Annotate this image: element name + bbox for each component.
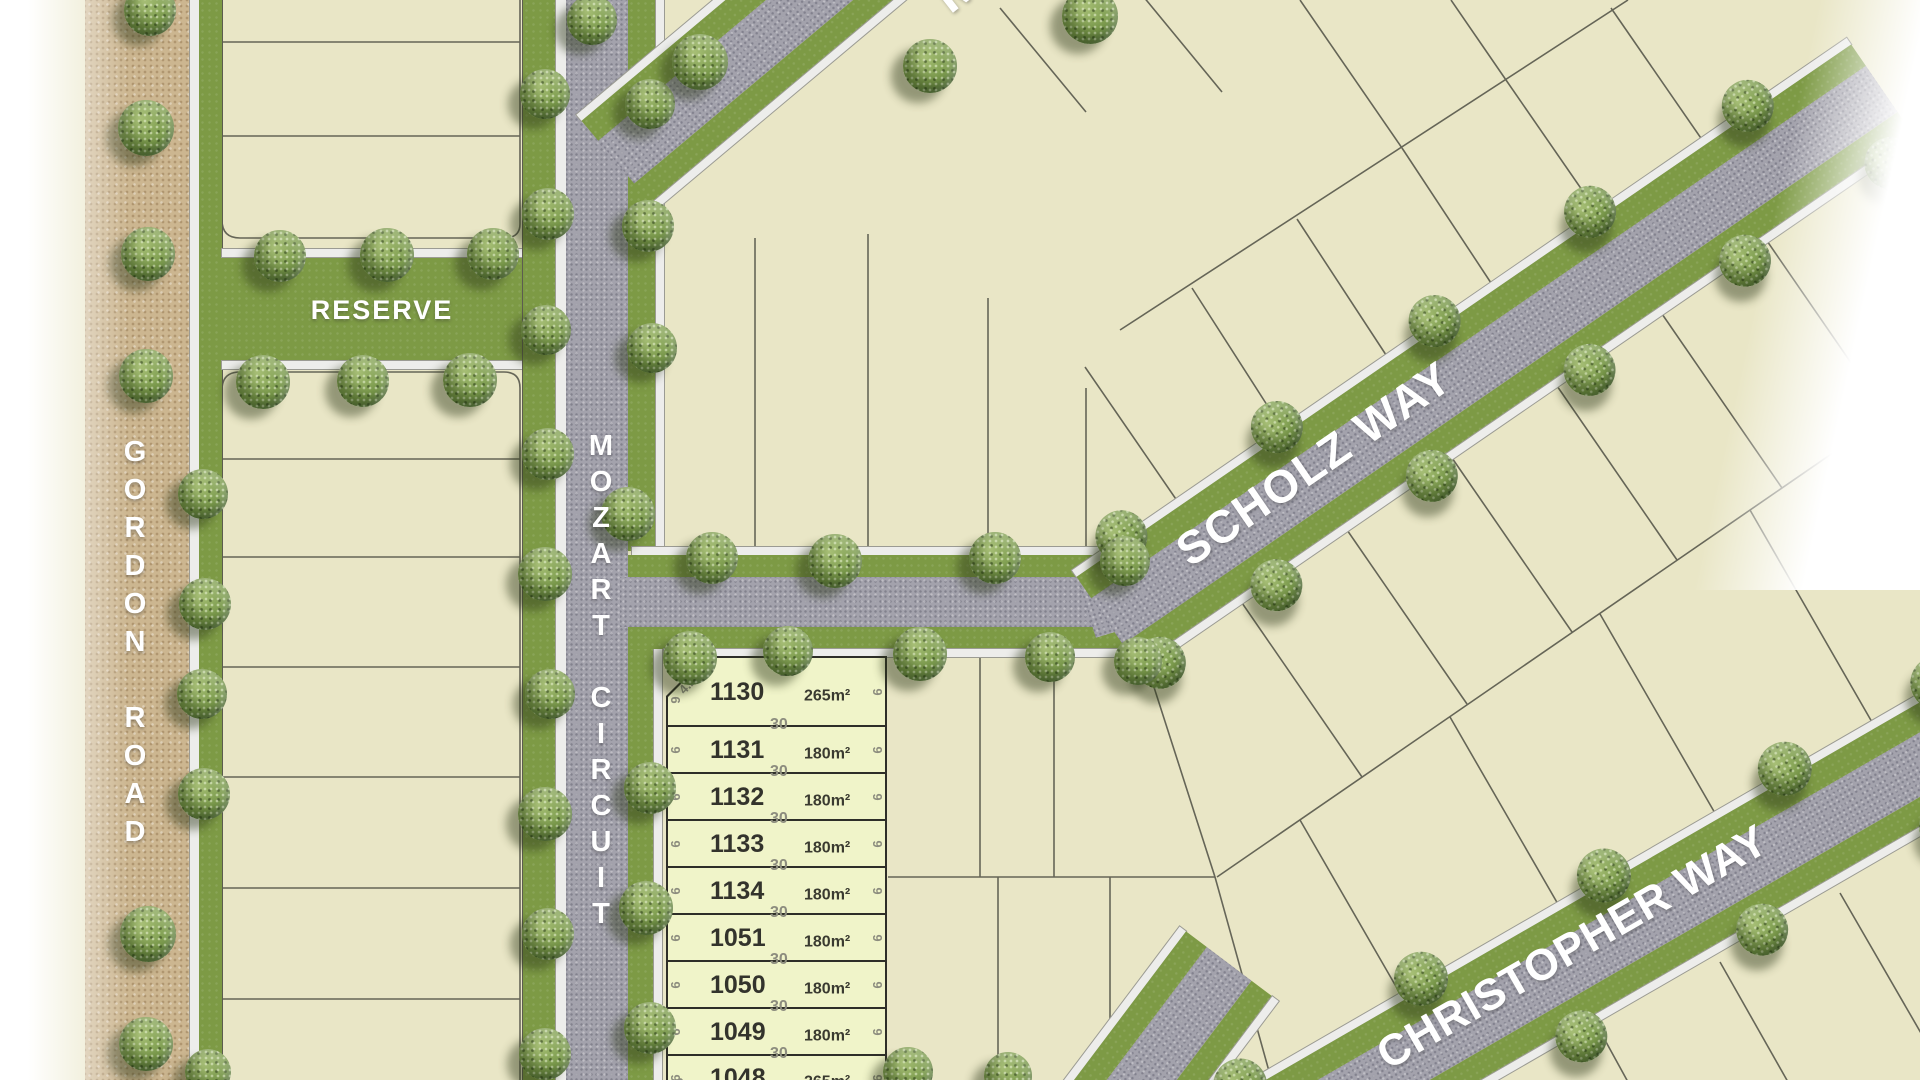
tree-icon: [672, 34, 728, 90]
lot-side-dimension-right: 6: [870, 840, 885, 847]
tree-icon: [624, 1002, 676, 1054]
lot-side-dimension-right: 6: [870, 887, 885, 894]
lot-front-dimension: 30: [770, 998, 788, 1016]
lot-number: 1133: [710, 830, 764, 859]
tree-icon: [467, 228, 519, 280]
tree-icon: [522, 188, 574, 240]
lot-number: 1049: [710, 1018, 766, 1047]
tree-icon: [1025, 632, 1075, 682]
tree-icon: [178, 768, 230, 820]
lot-front-dimension: 30: [770, 857, 788, 875]
lot-front-dimension: 30: [770, 904, 788, 922]
lot-side-dimension-right: 6: [870, 688, 885, 695]
tree-icon: [118, 100, 174, 156]
lot-front-dimension: 30: [770, 716, 788, 734]
lot-number: 1132: [710, 783, 764, 812]
lot-area: 180m²: [804, 1027, 850, 1045]
lot-side-dimension-left: 6: [668, 840, 683, 847]
tree-icon: [522, 908, 574, 960]
lot-side-dimension-left: 6: [668, 981, 683, 988]
lot-front-dimension: 30: [770, 1045, 788, 1063]
lot-side-dimension-right: 6: [870, 793, 885, 800]
tree-icon: [121, 227, 175, 281]
lot-side-dimension-left: 6: [668, 934, 683, 941]
tree-icon: [686, 532, 738, 584]
tree-icon: [360, 228, 414, 282]
tree-icon: [520, 69, 570, 119]
tree-icon: [622, 200, 674, 252]
tree-icon: [1100, 536, 1150, 586]
lot-area: 265m²: [804, 687, 850, 705]
lot-area: 180m²: [804, 745, 850, 763]
tree-icon: [1114, 637, 1162, 685]
tree-icon: [518, 547, 572, 601]
tree-icon: [120, 906, 176, 962]
tree-icon: [903, 39, 957, 93]
lot-area: 180m²: [804, 933, 850, 951]
tree-icon: [337, 355, 389, 407]
gordon-road-label: GORDON ROAD: [118, 436, 151, 854]
tree-icon: [624, 762, 676, 814]
tree-icon: [763, 626, 813, 676]
lot-rows: 271130265m²964.24301131180m²66301132180m…: [668, 658, 885, 1080]
lot-number: 1134: [710, 877, 764, 906]
tree-icon: [519, 1028, 571, 1080]
lot-number: 1051: [710, 924, 766, 953]
tree-icon: [808, 534, 862, 588]
tree-icon: [619, 881, 673, 935]
tree-icon: [443, 353, 497, 407]
lot-side-dimension-right: 6: [870, 934, 885, 941]
lot-front-dimension: 30: [770, 763, 788, 781]
tree-icon: [178, 469, 228, 519]
tree-icon: [627, 323, 677, 373]
lot-side-dimension-left: 9: [668, 696, 683, 703]
lot-area: 265m²: [804, 1073, 850, 1080]
gordon-road-footpath: [190, 0, 199, 1080]
tree-icon: [119, 1017, 173, 1071]
lot-area: 180m²: [804, 886, 850, 904]
tree-icon: [893, 627, 947, 681]
tree-icon: [518, 787, 572, 841]
lot-number: 1050: [710, 971, 766, 1000]
lot-number: 1131: [710, 736, 764, 765]
tree-icon: [521, 305, 571, 355]
tree-icon: [254, 230, 306, 282]
reserve-label: RESERVE: [282, 295, 482, 326]
tree-icon: [525, 669, 575, 719]
tree-icon: [522, 428, 574, 480]
tree-icon: [663, 631, 717, 685]
lot-side-dimension-right: 6: [870, 1028, 885, 1035]
highlighted-lot-table: 271130265m²964.24301131180m²66301132180m…: [666, 656, 887, 1080]
tree-icon: [625, 79, 675, 129]
lot-front-dimension: 30: [770, 810, 788, 828]
lot-row-1048[interactable]: 301048265m²664.2: [668, 1054, 885, 1080]
mozart-circuit-label: MOZART CIRCUIT: [584, 430, 617, 934]
tree-icon: [179, 578, 231, 630]
lot-area: 180m²: [804, 792, 850, 810]
estate-masterplan-map: SCHOLZ WAY CHRISTOPHER WAY MOZ 271130265…: [0, 0, 1920, 1080]
lot-number: 1130: [710, 678, 764, 707]
gordon-road-verge: [199, 0, 223, 1080]
lot-side-dimension-right: 6: [870, 981, 885, 988]
lot-number: 1048: [710, 1064, 766, 1080]
lot-side-dimension-right: 6: [870, 746, 885, 753]
lot-front-dimension: 30: [770, 951, 788, 969]
lot-side-dimension-left: 6: [668, 887, 683, 894]
lot-area: 180m²: [804, 839, 850, 857]
lot-side-dimension-left: 6: [668, 746, 683, 753]
tree-icon: [119, 349, 173, 403]
tree-icon: [236, 355, 290, 409]
lot-area: 180m²: [804, 980, 850, 998]
tree-icon: [177, 669, 227, 719]
tree-icon: [969, 532, 1021, 584]
